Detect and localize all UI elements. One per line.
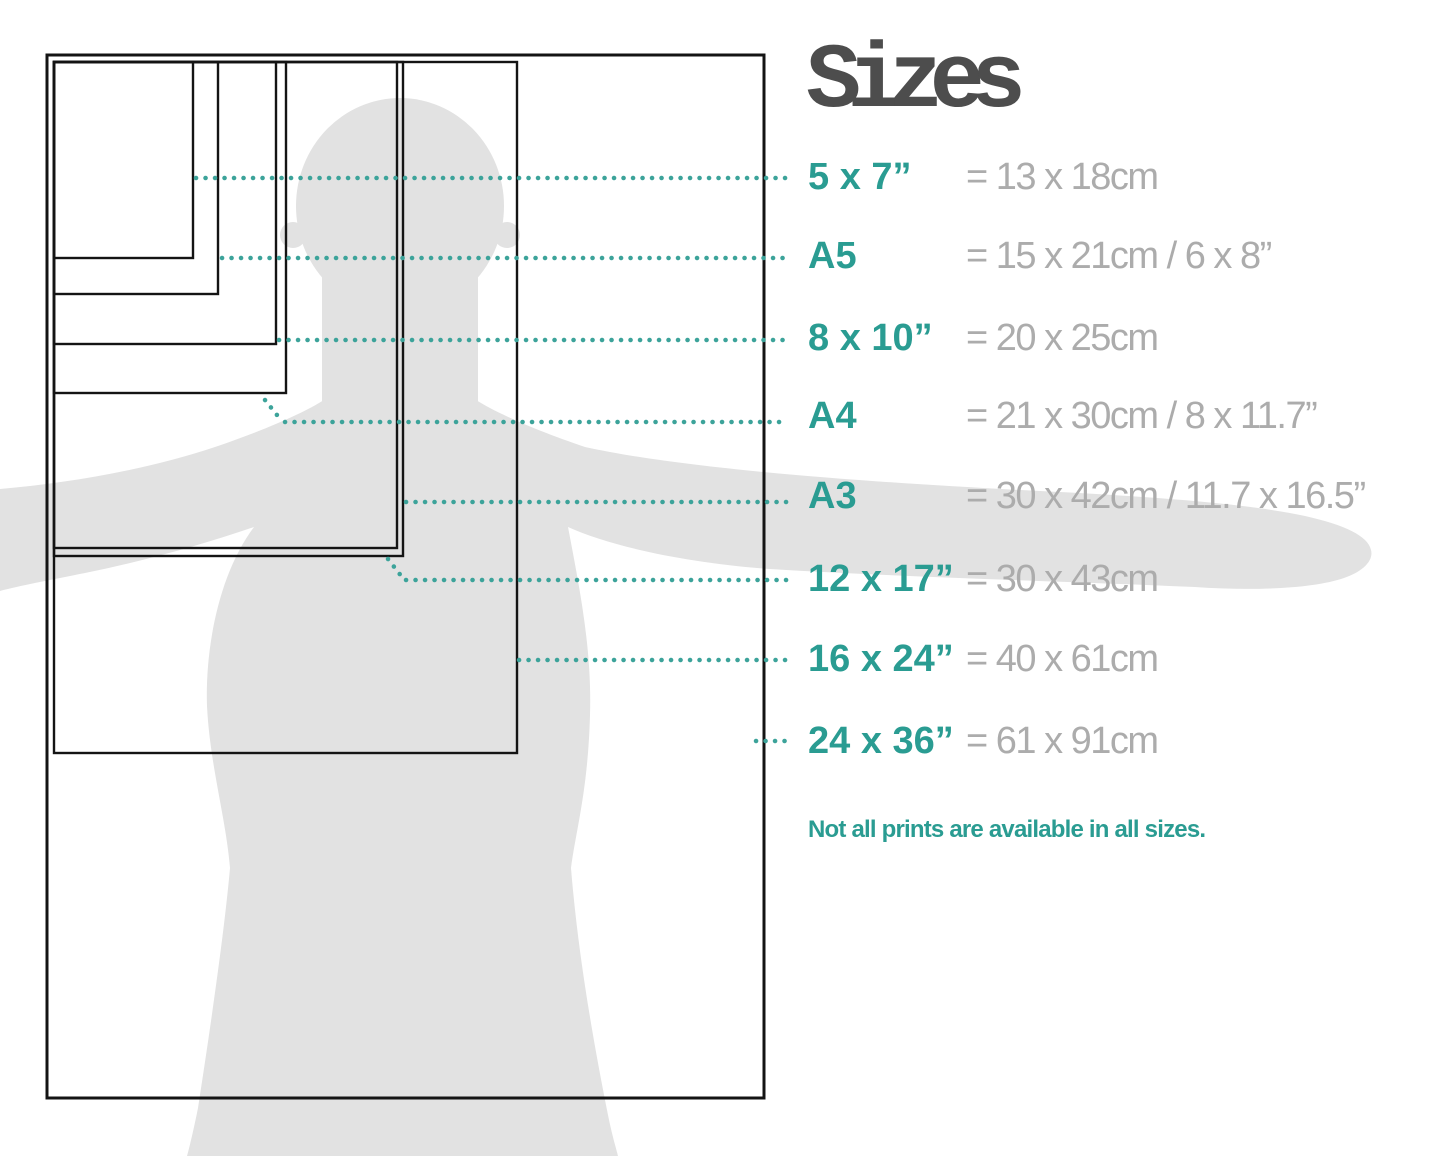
size-metric-equivalent: = 15 x 21cm / 6 x 8” (966, 237, 1271, 275)
size-metric-equivalent: = 40 x 61cm (966, 640, 1158, 678)
size-comparison-diagram (0, 0, 1445, 1156)
size-metric-equivalent: = 21 x 30cm / 8 x 11.7” (966, 397, 1316, 435)
size-label: 8 x 10” (808, 319, 966, 357)
size-row-12x17: 12 x 17” = 30 x 43cm (808, 560, 1158, 598)
size-label: 16 x 24” (808, 640, 966, 678)
print-size-guide: Sizes 5 x 7” = 13 x 18cm A5 = 15 x 21cm … (0, 0, 1445, 1156)
size-label: A5 (808, 237, 966, 275)
size-metric-equivalent: = 20 x 25cm (966, 319, 1158, 357)
size-label: A3 (808, 477, 966, 515)
size-label: 24 x 36” (808, 722, 966, 760)
size-metric-equivalent: = 61 x 91cm (966, 722, 1158, 760)
rect-5x7 (54, 62, 193, 258)
size-row-16x24: 16 x 24” = 40 x 61cm (808, 640, 1158, 678)
size-row-8x10: 8 x 10” = 20 x 25cm (808, 319, 1158, 357)
size-row-a5: A5 = 15 x 21cm / 6 x 8” (808, 237, 1271, 275)
size-label: 5 x 7” (808, 158, 966, 196)
size-label: 12 x 17” (808, 560, 966, 598)
rect-8x10 (54, 62, 276, 344)
size-metric-equivalent: = 30 x 42cm / 11.7 x 16.5” (966, 477, 1365, 515)
size-row-5x7: 5 x 7” = 13 x 18cm (808, 158, 1158, 196)
size-row-24x36: 24 x 36” = 61 x 91cm (808, 722, 1158, 760)
size-label: A4 (808, 397, 966, 435)
page-title: Sizes (806, 36, 1012, 128)
availability-note: Not all prints are available in all size… (808, 816, 1205, 844)
size-row-a3: A3 = 30 x 42cm / 11.7 x 16.5” (808, 477, 1365, 515)
head-shape (296, 98, 504, 314)
size-metric-equivalent: = 30 x 43cm (966, 560, 1158, 598)
size-row-a4: A4 = 21 x 30cm / 8 x 11.7” (808, 397, 1316, 435)
size-metric-equivalent: = 13 x 18cm (966, 158, 1158, 196)
